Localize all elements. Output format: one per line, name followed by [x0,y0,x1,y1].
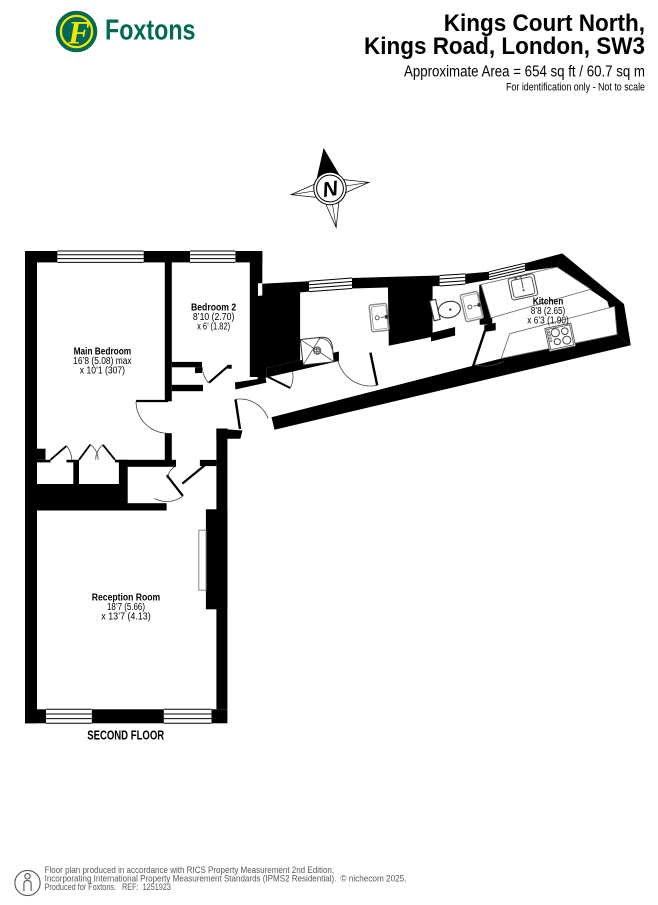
svg-text:x 6’3 (1.90): x 6’3 (1.90) [527,315,569,326]
svg-text:x 13’7 (4.13): x 13’7 (4.13) [101,612,150,623]
svg-text:SECOND FLOOR: SECOND FLOOR [87,727,164,742]
svg-text:For identification only - Not: For identification only - Not to scale [506,81,645,93]
svg-text:Foxtons: Foxtons [105,15,196,47]
svg-text:© nichecom 2025.: © nichecom 2025. [341,874,407,884]
svg-text:Approximate Area = 654 sq ft /: Approximate Area = 654 sq ft / 60.7 sq m [404,64,645,81]
svg-text:Kings Road, London, SW3: Kings Road, London, SW3 [364,33,645,60]
svg-text:x 10’1 (307): x 10’1 (307) [80,366,125,377]
svg-text:F: F [67,16,90,52]
svg-text:Produced for Foxtons. REF:: Produced for Foxtons. REF: 1251923 [45,882,171,892]
svg-text:x 6’ (1.82): x 6’ (1.82) [197,322,230,333]
